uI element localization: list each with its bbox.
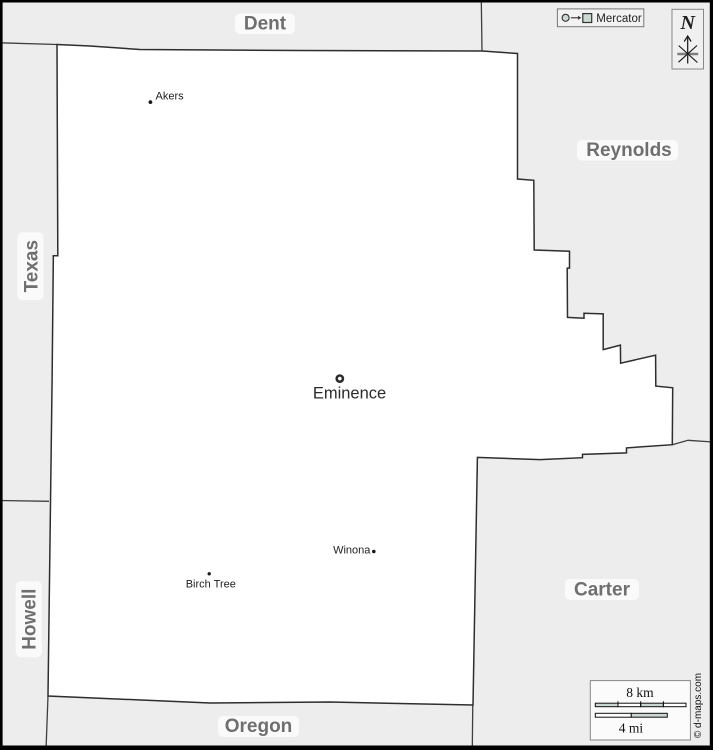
- svg-text:Eminence: Eminence: [313, 385, 386, 403]
- svg-text:4 mi: 4 mi: [619, 721, 644, 736]
- svg-text:Reynolds: Reynolds: [586, 140, 672, 161]
- svg-text:Dent: Dent: [244, 14, 287, 35]
- svg-text:Mercator: Mercator: [596, 13, 642, 25]
- svg-text:8 km: 8 km: [626, 685, 654, 700]
- svg-text:© d-maps.com: © d-maps.com: [693, 673, 704, 738]
- svg-text:Howell: Howell: [20, 589, 41, 650]
- svg-text:Oregon: Oregon: [225, 716, 293, 737]
- svg-text:Texas: Texas: [21, 240, 42, 292]
- svg-text:Winona: Winona: [333, 545, 371, 557]
- svg-text:Birch Tree: Birch Tree: [186, 578, 236, 590]
- svg-text:Akers: Akers: [156, 90, 185, 102]
- svg-text:N: N: [679, 12, 696, 34]
- svg-text:Carter: Carter: [574, 580, 631, 601]
